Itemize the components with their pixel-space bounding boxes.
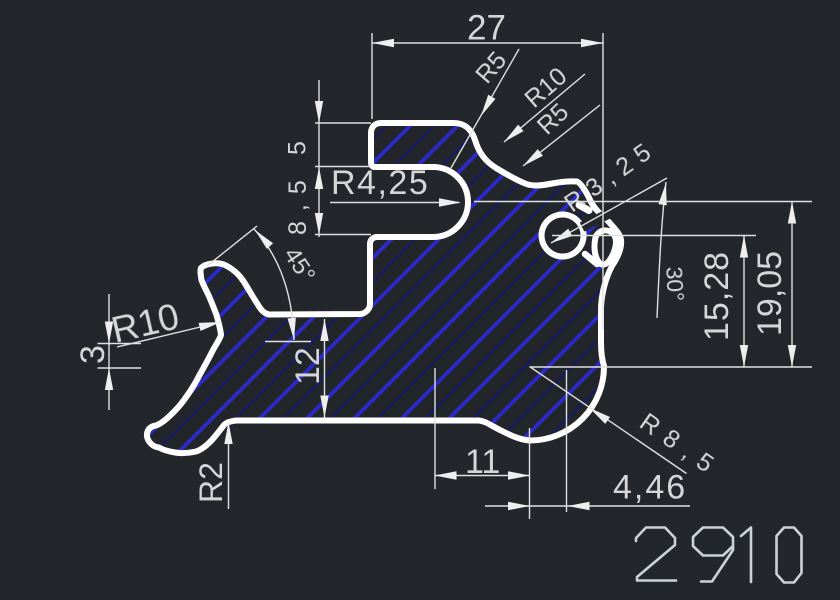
svg-text:27: 27 <box>467 9 506 48</box>
svg-text:11: 11 <box>465 443 500 481</box>
svg-text:8,5: 8,5 <box>284 170 312 235</box>
svg-text:R4,25: R4,25 <box>331 164 429 202</box>
svg-text:12: 12 <box>289 347 327 385</box>
svg-text:5: 5 <box>284 141 312 155</box>
svg-text:15,28: 15,28 <box>698 251 736 341</box>
svg-text:3: 3 <box>74 345 112 364</box>
svg-text:4,46: 4,46 <box>613 469 687 507</box>
svg-text:30°: 30° <box>661 266 689 302</box>
svg-text:R2: R2 <box>193 462 229 503</box>
svg-text:19,05: 19,05 <box>751 251 789 336</box>
